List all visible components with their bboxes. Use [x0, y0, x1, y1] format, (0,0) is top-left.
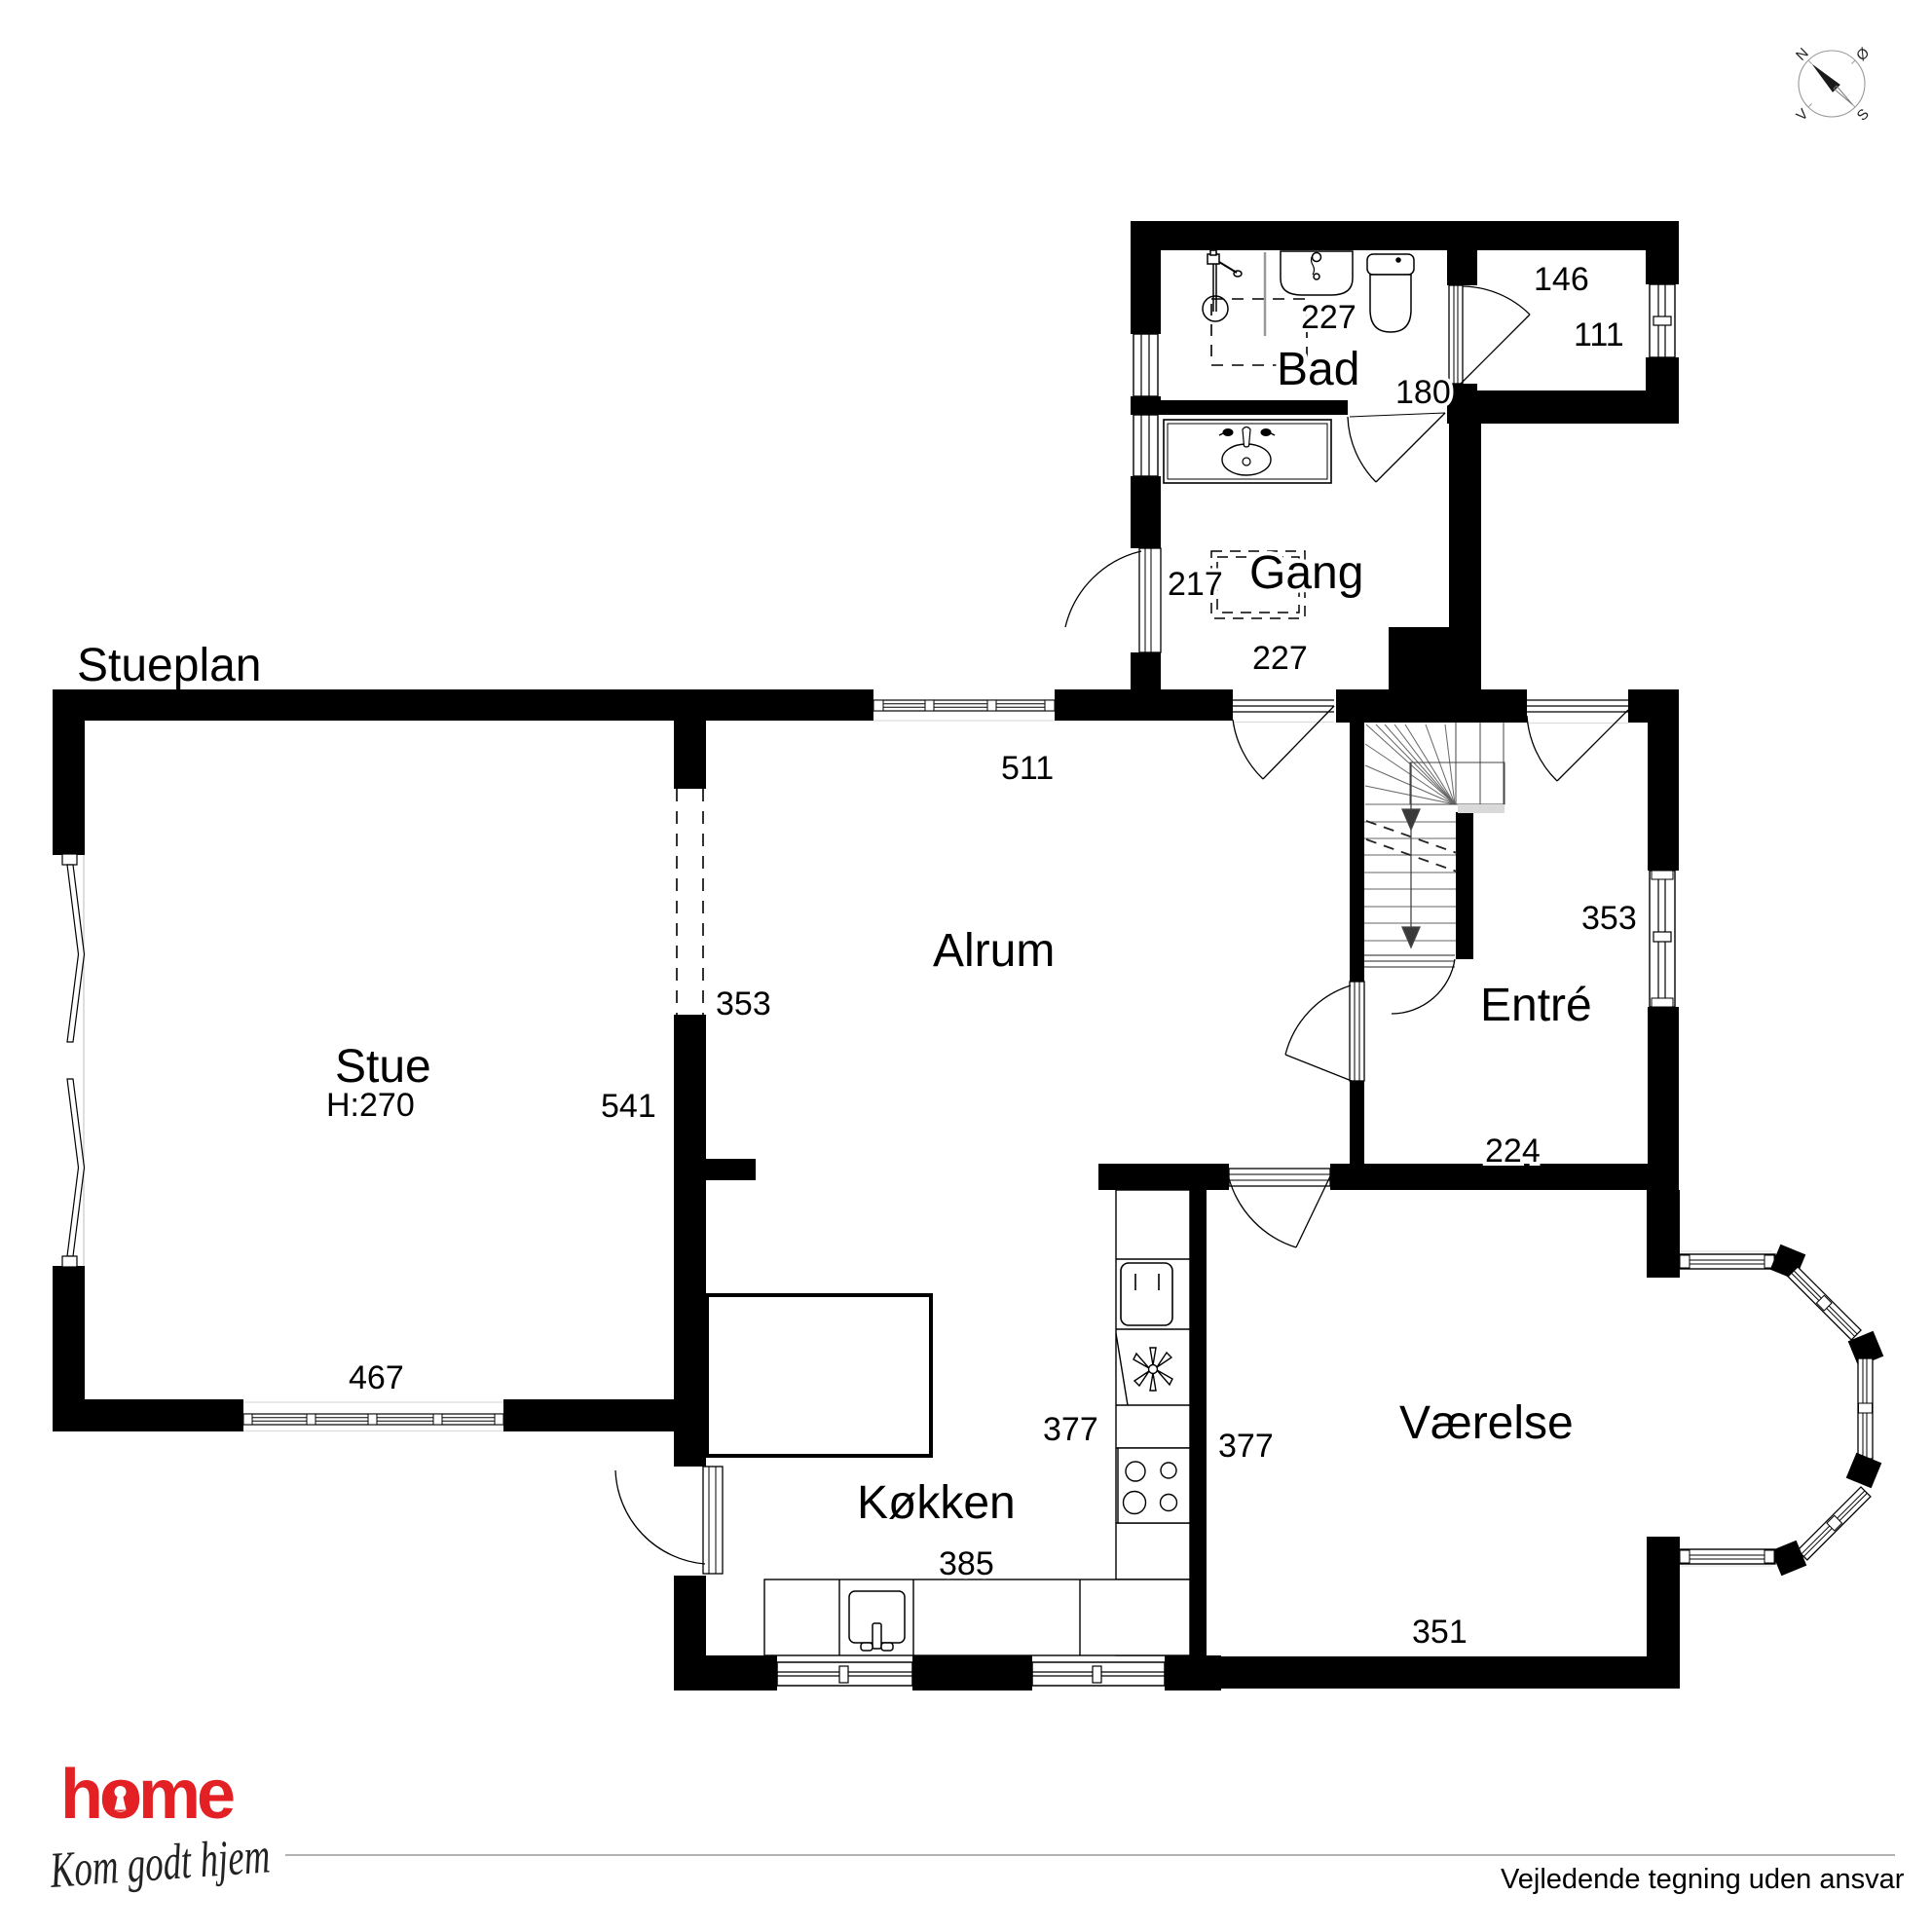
svg-text:H:270: H:270: [326, 1087, 415, 1124]
svg-text:377: 377: [1218, 1428, 1274, 1465]
svg-text:351: 351: [1412, 1614, 1468, 1651]
svg-text:377: 377: [1043, 1411, 1098, 1448]
svg-text:217: 217: [1168, 566, 1223, 603]
svg-text:180: 180: [1395, 374, 1451, 411]
svg-text:Alrum: Alrum: [933, 925, 1055, 977]
svg-text:227: 227: [1252, 640, 1308, 677]
svg-text:111: 111: [1574, 316, 1624, 353]
svg-text:227: 227: [1301, 299, 1356, 336]
svg-text:Værelse: Værelse: [1399, 1397, 1574, 1449]
svg-text:Gang: Gang: [1249, 547, 1363, 599]
svg-text:Stue: Stue: [335, 1041, 431, 1093]
svg-text:541: 541: [601, 1088, 656, 1125]
svg-text:home: home: [60, 1756, 234, 1834]
svg-text:Stueplan: Stueplan: [77, 640, 262, 691]
svg-text:353: 353: [1581, 900, 1637, 937]
svg-text:385: 385: [939, 1545, 994, 1582]
svg-text:Entré: Entré: [1480, 980, 1592, 1031]
svg-text:Bad: Bad: [1277, 344, 1359, 395]
svg-text:146: 146: [1534, 261, 1589, 298]
svg-text:511: 511: [1001, 750, 1054, 787]
svg-text:224: 224: [1485, 1133, 1541, 1170]
svg-text:Vejledende tegning uden ansvar: Vejledende tegning uden ansvar: [1501, 1864, 1905, 1895]
svg-text:467: 467: [349, 1359, 404, 1396]
svg-text:Køkken: Køkken: [857, 1477, 1016, 1529]
svg-text:353: 353: [716, 985, 771, 1022]
